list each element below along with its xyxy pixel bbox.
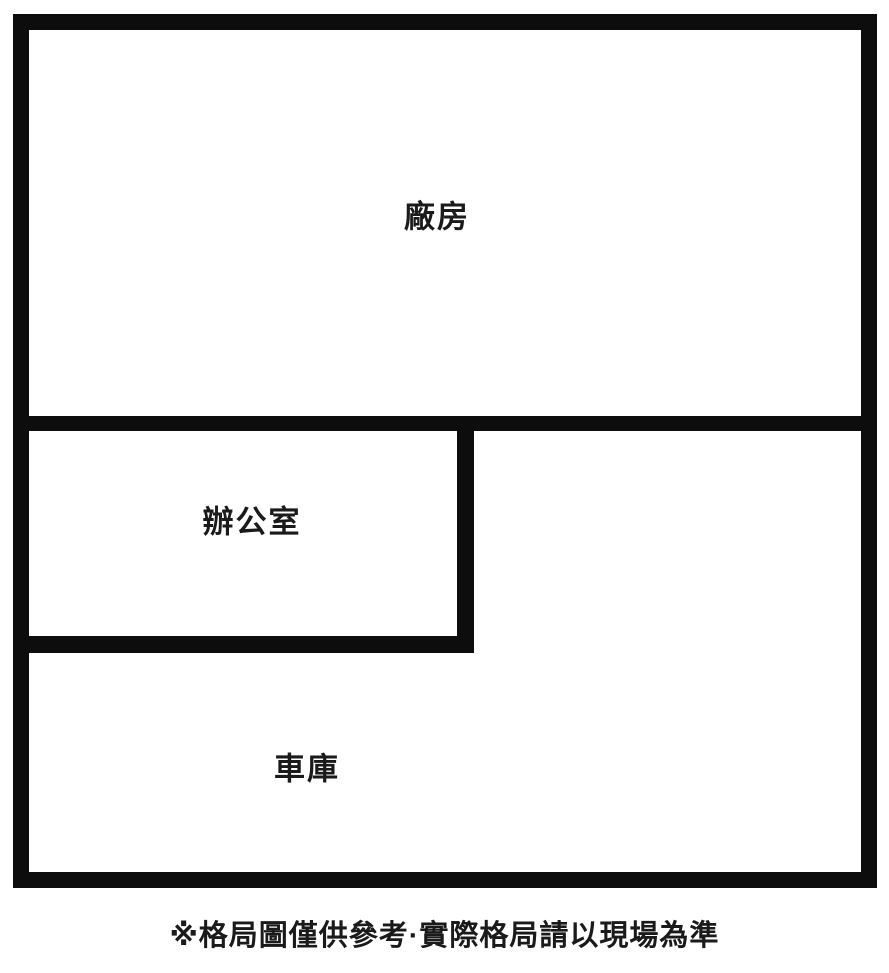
wall-office-right xyxy=(457,416,474,653)
wall-factory-divider xyxy=(29,416,861,431)
room-label-factory: 廠房 xyxy=(404,202,470,233)
room-label-garage: 車庫 xyxy=(274,754,340,785)
floor-plan-canvas: 廠房 辦公室 車庫 ※格局圖僅供參考·實際格局請以現場為準 xyxy=(0,0,889,973)
room-label-office: 辦公室 xyxy=(203,507,302,538)
floor-plan-outline: 廠房 辦公室 車庫 xyxy=(13,14,877,888)
wall-office-bottom xyxy=(29,636,474,653)
disclaimer-text: ※格局圖僅供參考·實際格局請以現場為準 xyxy=(0,921,889,953)
